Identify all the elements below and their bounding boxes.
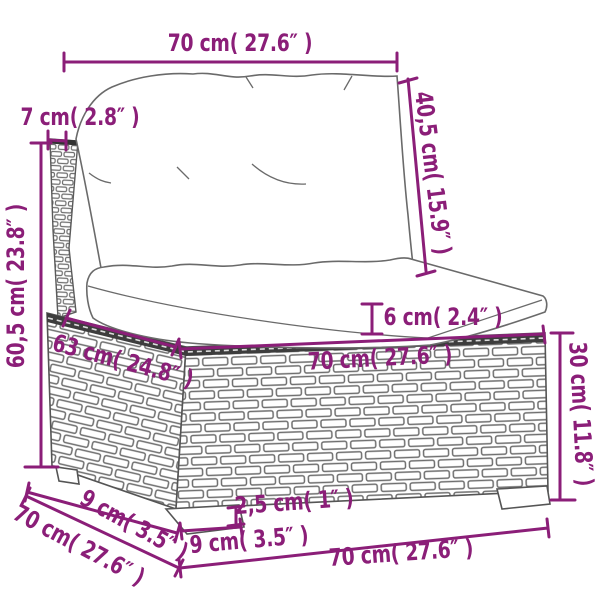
back-left-leg <box>56 467 79 484</box>
dim-label-back-thickness: 7 cm( 2.8″ ) <box>20 103 139 131</box>
back-panel-strip <box>49 139 79 318</box>
dim-label-total-height: 60,5 cm( 23.8″ ) <box>2 204 30 368</box>
dim-label-seat-cushion-thickness: 6 cm( 2.4″ ) <box>383 303 502 331</box>
front-right-leg <box>497 486 550 509</box>
dim-label-top-width: 70 cm( 27.6″ ) <box>168 29 313 57</box>
dimension-diagram: 70 cm( 27.6″ ) 7 cm( 2.8″ ) 40,5 cm( 15.… <box>0 0 600 600</box>
